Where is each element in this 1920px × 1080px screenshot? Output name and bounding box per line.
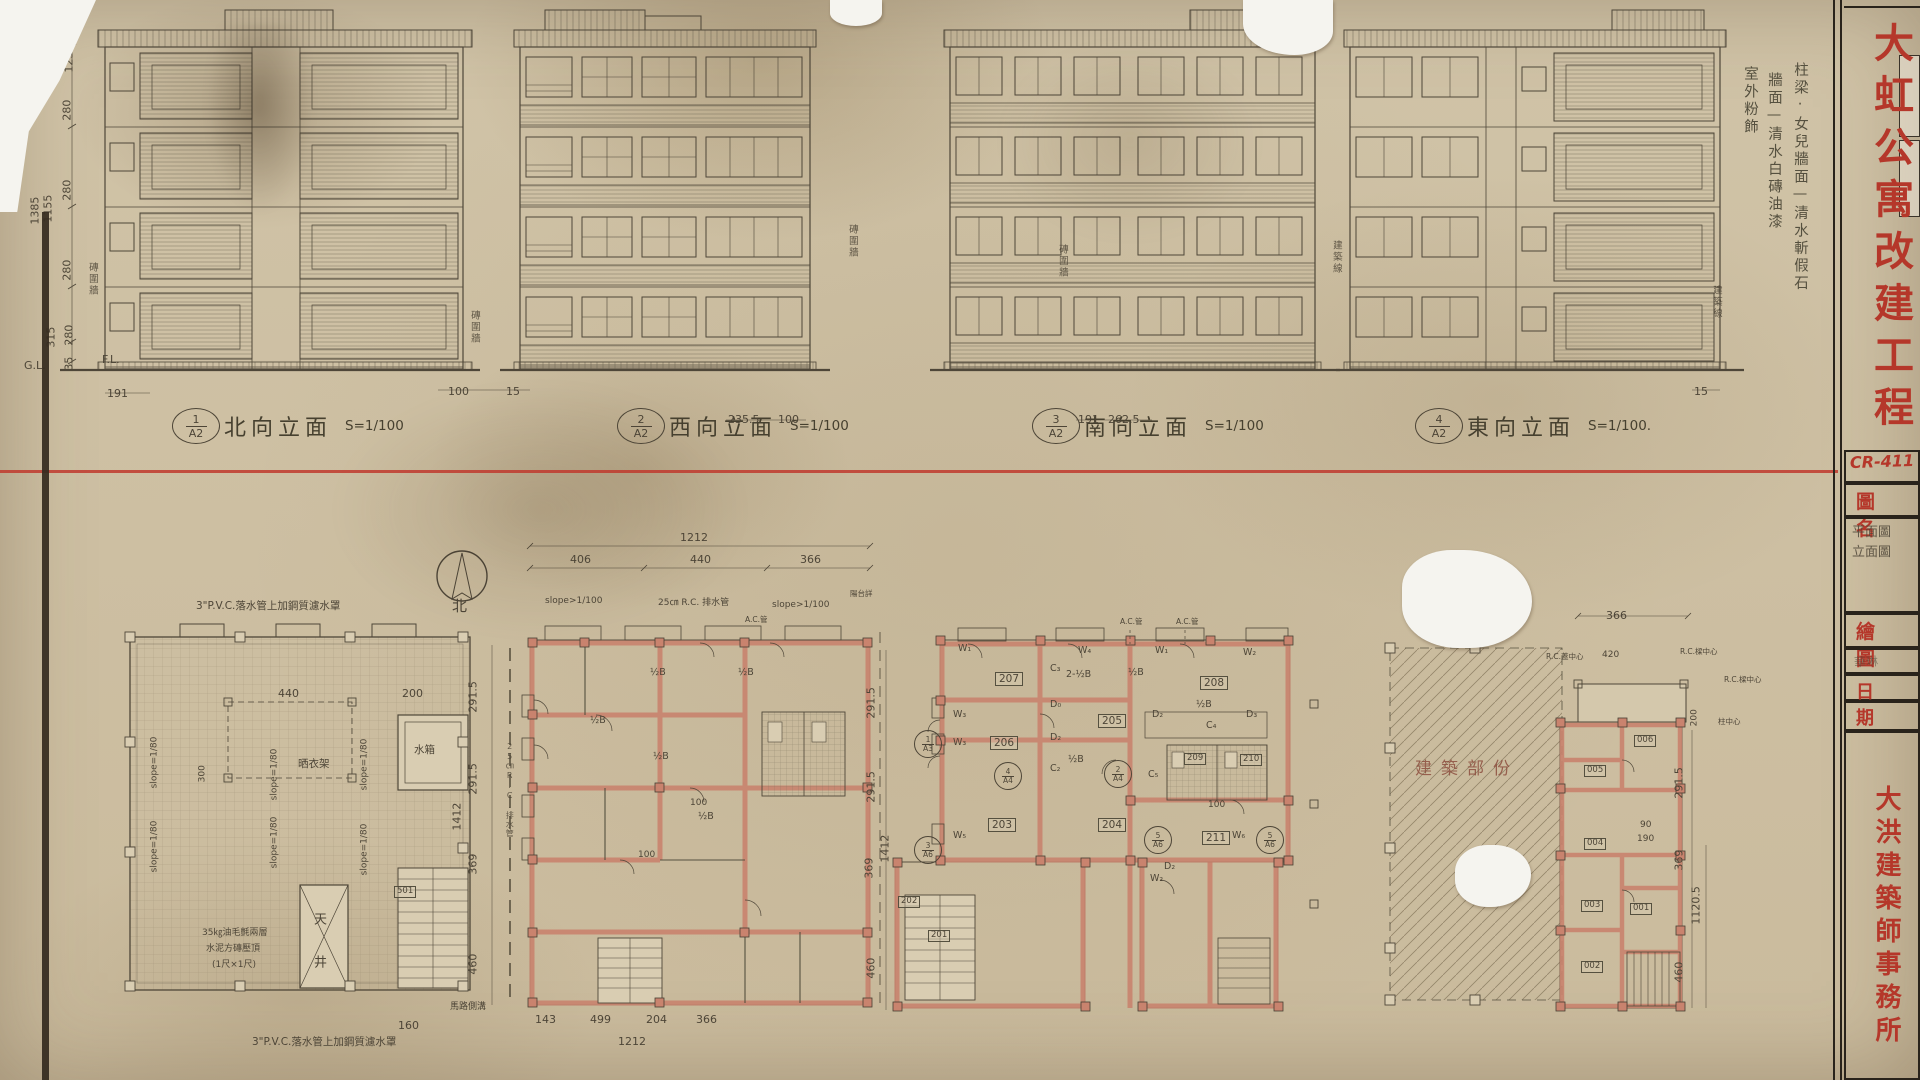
dimension-label: 100	[1208, 800, 1225, 810]
dimension-label: 420	[1602, 650, 1619, 660]
date-value-cell	[1844, 701, 1920, 731]
opening-mark: C₂	[1050, 764, 1060, 775]
drawing-name-label-cell: 圖名	[1844, 483, 1920, 517]
dimension-label: 1212	[680, 532, 708, 545]
annotation-note: A.C.管	[745, 616, 768, 625]
dimension-label: 100	[690, 798, 707, 808]
elevation-scale: S=1/100.	[1588, 418, 1651, 434]
opening-mark: W₁	[958, 644, 971, 655]
annotation-note: 25㎝ R.C. 排水管	[658, 598, 729, 608]
annotation-note: 3"P.V.C.落水管上加鋼質濾水罩	[252, 1036, 396, 1048]
opening-mark: W₅	[953, 831, 966, 842]
opening-mark: ½B	[653, 752, 669, 763]
detail-reference-bubble: 2A4	[1104, 760, 1132, 788]
detail-reference-bubble: 4A4	[994, 762, 1022, 790]
room-tag: 004	[1584, 838, 1606, 850]
dimension-label: 291.5	[1673, 767, 1686, 799]
annotation-note: 晒衣架	[298, 758, 330, 770]
dimension-label: slope=1/80	[150, 737, 160, 789]
dimension-label: 291.5	[865, 771, 878, 803]
dimension-label: 366	[800, 554, 821, 567]
opening-mark: ½B	[650, 668, 666, 679]
title-block-rule	[1833, 0, 1842, 1080]
project-title: 大虹公寓改建工程	[1861, 22, 1919, 452]
opening-mark: C₃	[1050, 664, 1060, 675]
dimension-label: 300	[198, 765, 208, 782]
drawn-by-signature: 華琳	[1845, 648, 1918, 673]
elevation-scale: S=1/100	[1205, 418, 1264, 434]
dimension-label: 160	[398, 1020, 419, 1033]
detail-reference-bubble: 5A6	[1256, 826, 1284, 854]
dimension-label: 291.5	[865, 687, 878, 719]
elevation-ref-bubble: 1 A2	[172, 408, 220, 444]
elevation-number: 1	[186, 414, 207, 427]
dimension-label: 1412	[451, 803, 464, 831]
dimension-label: 291.5	[467, 763, 480, 795]
dimension-label: 1212	[618, 1036, 646, 1049]
dimension-label: 191	[1078, 414, 1099, 427]
opening-mark: ½B	[1128, 668, 1144, 679]
opening-mark: C₄	[1206, 721, 1216, 732]
dimension-label: 280	[61, 180, 74, 201]
dimension-label: slope=1/80	[270, 749, 280, 801]
room-tag: 208	[1200, 676, 1228, 690]
detail-reference-bubble: 1A3	[914, 730, 942, 758]
drawn-by-value-cell: 華琳	[1844, 648, 1920, 674]
dimension-label: slope=1/80	[360, 824, 370, 876]
room-tag: 201	[928, 930, 950, 942]
room-tag: 005	[1584, 765, 1606, 777]
opening-mark: ½B	[698, 812, 714, 823]
title-block-topline	[1844, 6, 1920, 8]
annotation-note: 建築線	[1710, 285, 1721, 320]
room-tag: 204	[1098, 818, 1126, 832]
opening-mark: 2-½B	[1066, 670, 1091, 681]
dimension-label: 366	[696, 1014, 717, 1027]
annotation-note: R.C.樑中心	[1680, 648, 1717, 657]
dimension-label: 369	[863, 858, 876, 879]
room-tag: 003	[1581, 900, 1603, 912]
annotation-note: 建築線	[1330, 240, 1341, 275]
room-tag: 202	[898, 896, 920, 908]
room-tag: 006	[1634, 735, 1656, 747]
opening-mark: W₂	[1243, 648, 1256, 659]
dimension-label: 291.5	[467, 681, 480, 713]
elevation-ref-bubble: 2 A2	[617, 408, 665, 444]
paper-tear	[1402, 550, 1532, 648]
elevation-number: 3	[1046, 414, 1067, 427]
opening-mark: ½B	[1196, 700, 1212, 711]
annotation-note: 柱中心	[1718, 718, 1741, 727]
opening-mark: W₂	[1150, 874, 1163, 885]
dimension-label: 100	[638, 850, 655, 860]
opening-mark: D₃	[1246, 710, 1257, 721]
room-tag: 211	[1202, 831, 1230, 845]
annotation-note: 水泥方磚壓頂	[206, 944, 260, 954]
dimension-label: 499	[590, 1014, 611, 1027]
dimension-label: 1412	[879, 835, 892, 863]
opening-mark: D₀	[1050, 700, 1061, 711]
dimension-label: 460	[1673, 962, 1686, 983]
elevation-number: 4	[1429, 414, 1450, 427]
annotation-note: 馬路側溝	[450, 1002, 486, 1012]
finish-note: 柱梁‧女兒牆面—清水斬假石	[1790, 62, 1811, 362]
finish-note: 室外粉飾	[1740, 66, 1761, 186]
room-tag: 002	[1581, 961, 1603, 973]
dimension-label: 1120.5	[1690, 886, 1703, 925]
dimension-label: 191	[107, 388, 128, 401]
room-tag: 501	[394, 886, 416, 898]
architectural-drawing-sheet: 1 A2 北向立面 S=1/100 2 A2 西向立面 S=1/100 3 A2…	[0, 0, 1920, 1080]
opening-mark: D₂	[1152, 710, 1163, 721]
red-datum-line	[0, 470, 1838, 473]
elevation-number: 2	[631, 414, 652, 427]
detail-reference-bubble: 5A6	[1144, 826, 1172, 854]
room-tag: 209	[1184, 753, 1206, 765]
elevation-title: 北向立面	[224, 410, 332, 442]
drawing-name-line: 立面圖	[1852, 543, 1912, 563]
elevation-sheet: A2	[1049, 428, 1064, 439]
firm-name-cell: 大洪建築師事務所	[1844, 731, 1920, 1080]
date-label-cell: 日期	[1844, 674, 1920, 701]
opening-mark: ½B	[738, 668, 754, 679]
annotation-note: slope>1/100	[545, 596, 602, 606]
annotation-note: 磚圍牆	[846, 224, 857, 259]
dimension-label: slope=1/80	[150, 821, 160, 873]
opening-mark: W₄	[1078, 646, 1091, 657]
dimension-label: 369	[467, 854, 480, 875]
dimension-label: 190	[1637, 834, 1654, 844]
dimension-label: 204	[646, 1014, 667, 1027]
opening-mark: W₃	[953, 738, 966, 749]
dimension-label: 440	[690, 554, 711, 567]
annotation-note: 天井	[310, 912, 325, 998]
finish-note: 牆面—清水白磚油漆	[1764, 72, 1785, 332]
dimension-label: 366	[1606, 610, 1627, 623]
annotation-note: 磚圍牆	[86, 262, 97, 297]
opening-mark: W₆	[1232, 831, 1245, 842]
drawing-number-cell: CR-411	[1844, 450, 1920, 483]
paper-tear	[830, 0, 882, 26]
dimension-label: 1385	[29, 197, 42, 225]
elevation-title: 西向立面	[669, 410, 777, 442]
sheet-edge-strip	[42, 212, 49, 1080]
north-label: 北	[452, 598, 467, 615]
dimension-label: slope=1/80	[360, 739, 370, 791]
annotation-note: 35㎏油毛氈兩層	[202, 928, 267, 938]
dimension-label: 200	[402, 688, 423, 701]
title-block: 大虹公寓改建工程 CR-411 圖名 平面圖 立面圖 繪圖 華琳 日期 大洪建築…	[1833, 0, 1920, 1080]
room-tag: 001	[1630, 903, 1652, 915]
opening-mark: D₂	[1050, 733, 1061, 744]
elevation-ref-bubble: 4 A2	[1415, 408, 1463, 444]
drawing-number: CR-411	[1846, 451, 1919, 473]
dimension-label: 100	[448, 386, 469, 399]
dimension-label: 100	[778, 414, 799, 427]
annotation-note: 磚圍牆	[468, 310, 479, 345]
dimension-label: 280	[61, 260, 74, 281]
drawing-linework	[0, 0, 1920, 1080]
dimension-label: 90	[1640, 820, 1651, 830]
annotation-note: slope>1/100	[772, 600, 829, 610]
dimension-label: 406	[570, 554, 591, 567]
opening-mark: W₃	[953, 710, 966, 721]
dimension-label: 200	[1690, 709, 1700, 726]
drawn-by-label-cell: 繪圖	[1844, 613, 1920, 648]
drawing-name-value-cell: 平面圖 立面圖	[1844, 517, 1920, 613]
dimension-label: 460	[865, 958, 878, 979]
elevation-sheet: A2	[1432, 428, 1447, 439]
annotation-note: A.C.管	[1176, 618, 1199, 627]
detail-reference-bubble: 3A6	[914, 836, 942, 864]
room-tag: 207	[995, 672, 1023, 686]
room-tag: 210	[1240, 754, 1262, 766]
elevation-ref-bubble: 3 A2	[1032, 408, 1080, 444]
annotation-note: 3"P.V.C.落水管上加鋼質濾水罩	[196, 600, 340, 612]
dimension-label: 35	[63, 357, 76, 371]
dimension-label: 143	[535, 1014, 556, 1027]
dimension-label: 235.5	[728, 414, 760, 427]
opening-mark: D₂	[1164, 862, 1175, 873]
annotation-note: 磚圍牆	[1056, 244, 1067, 279]
firm-name: 大洪建築師事務所	[1868, 785, 1905, 1065]
elevation-title: 東向立面	[1467, 410, 1575, 442]
dimension-label: 15	[1694, 386, 1708, 399]
dimension-label: 440	[278, 688, 299, 701]
room-tag: 206	[990, 736, 1018, 750]
elevation-scale: S=1/100	[345, 418, 404, 434]
room-tag: 205	[1098, 714, 1126, 728]
room-tag: 203	[988, 818, 1016, 832]
area-label: 建築部份	[1415, 760, 1519, 780]
dimension-label: 262.5	[1108, 414, 1140, 427]
elevation-sheet: A2	[189, 428, 204, 439]
annotation-note: 陽台詳	[850, 590, 873, 599]
dimension-label: 15	[506, 386, 520, 399]
annotation-note: R.C.樑中心	[1724, 676, 1761, 685]
dimension-label: F.L.	[102, 354, 120, 367]
opening-mark: ½B	[590, 716, 606, 727]
opening-mark: ½B	[1068, 755, 1084, 766]
dimension-label: 280	[63, 325, 76, 346]
dimension-label: slope=1/80	[270, 817, 280, 869]
elevation-sheet: A2	[634, 428, 649, 439]
annotation-note: R.C.蓋中心	[1546, 653, 1583, 662]
annotation-note: 水箱	[414, 744, 435, 756]
opening-mark: W₁	[1155, 646, 1168, 657]
annotation-note: 25㎝R.C.排水管	[505, 742, 514, 838]
dimension-label: 460	[467, 954, 480, 975]
dimension-label: 280	[61, 100, 74, 121]
annotation-note: A.C.管	[1120, 618, 1143, 627]
annotation-note: (1尺×1尺)	[212, 960, 256, 970]
drawing-name-line: 平面圖	[1852, 523, 1912, 543]
opening-mark: C₅	[1148, 770, 1158, 781]
dimension-label: 369	[1673, 850, 1686, 871]
